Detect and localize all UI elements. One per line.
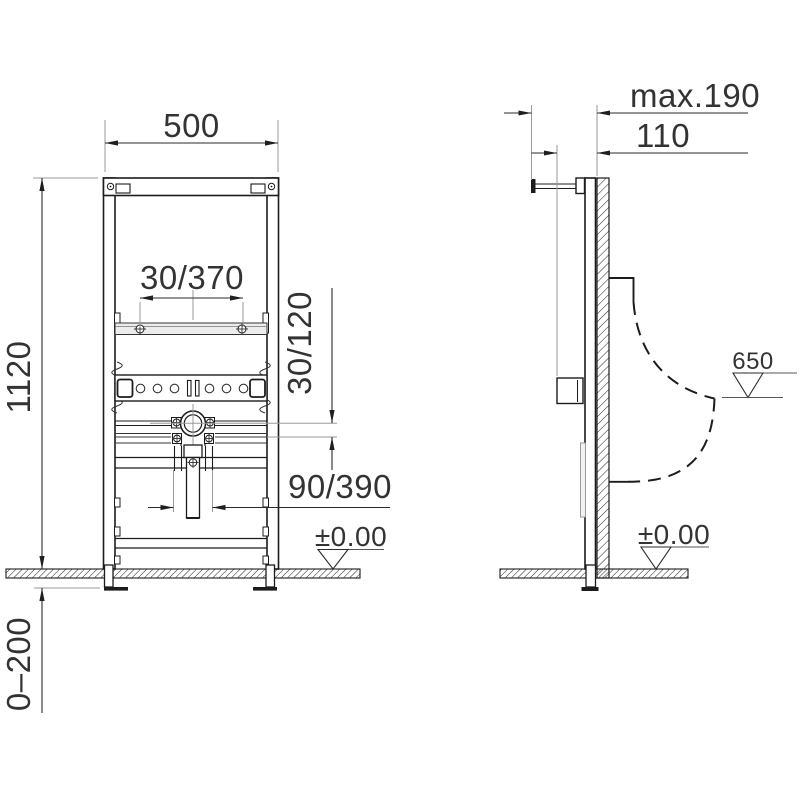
- corner-tab-left: [116, 184, 130, 193]
- dim-max-depth-label: max.190: [630, 77, 760, 114]
- level-triangle-rim: [733, 373, 763, 398]
- dim-inlet-offset-label: 30/120: [281, 291, 318, 395]
- dim-inlet-offset: 30/120: [281, 288, 335, 470]
- center-slot-left: [188, 381, 192, 397]
- frame-right-post: [267, 178, 279, 569]
- frame-left-post: [104, 178, 116, 569]
- wall-section: [597, 178, 609, 578]
- drain-pipe-side: [581, 443, 586, 517]
- floor-section-front: [6, 569, 360, 578]
- rim-height-marker: 650: [722, 348, 797, 398]
- floor-level-front-label: ±0.00: [315, 521, 387, 552]
- dim-drain-offset-label: 90/390: [288, 468, 392, 505]
- rim-height-label: 650: [732, 348, 774, 375]
- dim-height: 1120: [0, 178, 98, 569]
- front-view: 500 1120 30/370 30/120: [0, 107, 392, 713]
- floor-level-side-label: ±0.00: [638, 519, 710, 550]
- dim-front-width-label: 500: [163, 107, 220, 144]
- crossbar-endcap-left: [118, 380, 133, 398]
- level-triangle-side: [641, 547, 671, 569]
- wall-anchor-rod: [531, 178, 585, 194]
- center-slot-right: [196, 381, 200, 397]
- floor-level-marker-side: ±0.00: [638, 519, 710, 569]
- rod-nut: [576, 178, 585, 194]
- bottom-crossbar: [115, 539, 267, 549]
- rod-end-cap: [531, 179, 536, 193]
- foot-plate-side: [582, 587, 599, 591]
- frame-post-side: [585, 178, 596, 569]
- dim-max-depth: max.190: [504, 77, 760, 180]
- inlet-box: [557, 378, 583, 404]
- drawing-canvas: 500 1120 30/370 30/120: [0, 0, 800, 800]
- side-view: max.190 110 650 ±0.00: [500, 77, 797, 591]
- dim-fixing-distance: 30/370: [140, 259, 244, 327]
- dim-width: 500: [105, 107, 278, 172]
- urinal-outline: [609, 278, 715, 482]
- dim-inlet-depth-label: 110: [636, 117, 690, 154]
- drain-pipe: [184, 445, 202, 518]
- dim-foot-adjustment-label: 0–200: [0, 617, 37, 711]
- level-triangle-front: [318, 550, 348, 570]
- upper-fixing-rail: [115, 313, 269, 335]
- crossbar-endcap-right: [250, 380, 265, 398]
- foot-plate-right: [253, 587, 277, 591]
- dim-foot-adjustment: 0–200: [0, 588, 100, 713]
- foot-plate-left: [104, 587, 128, 591]
- dim-front-height-label: 1120: [0, 341, 37, 414]
- mounting-crossbar: [115, 375, 267, 401]
- dim-inlet-depth: 110: [532, 117, 749, 376]
- technical-drawing: 500 1120 30/370 30/120: [0, 0, 800, 800]
- dim-fixing-distance-label: 30/370: [140, 259, 244, 296]
- floor-level-marker-front: ±0.00: [315, 521, 387, 569]
- corner-tab-right: [251, 184, 265, 193]
